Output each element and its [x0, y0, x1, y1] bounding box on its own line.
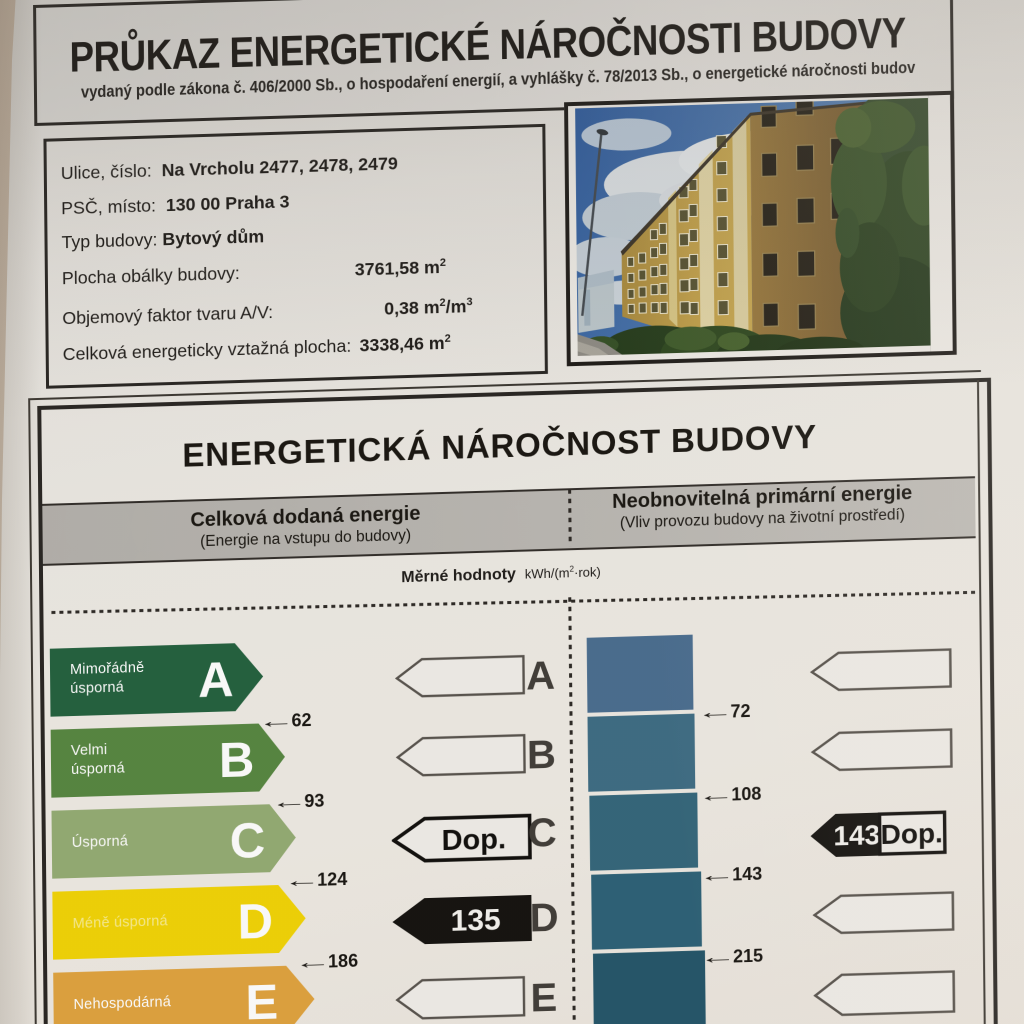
svg-text:Dop.: Dop.: [880, 817, 943, 850]
svg-text:143: 143: [833, 819, 880, 851]
svg-text:Dop.: Dop.: [441, 823, 506, 857]
svg-text:135: 135: [450, 903, 500, 937]
